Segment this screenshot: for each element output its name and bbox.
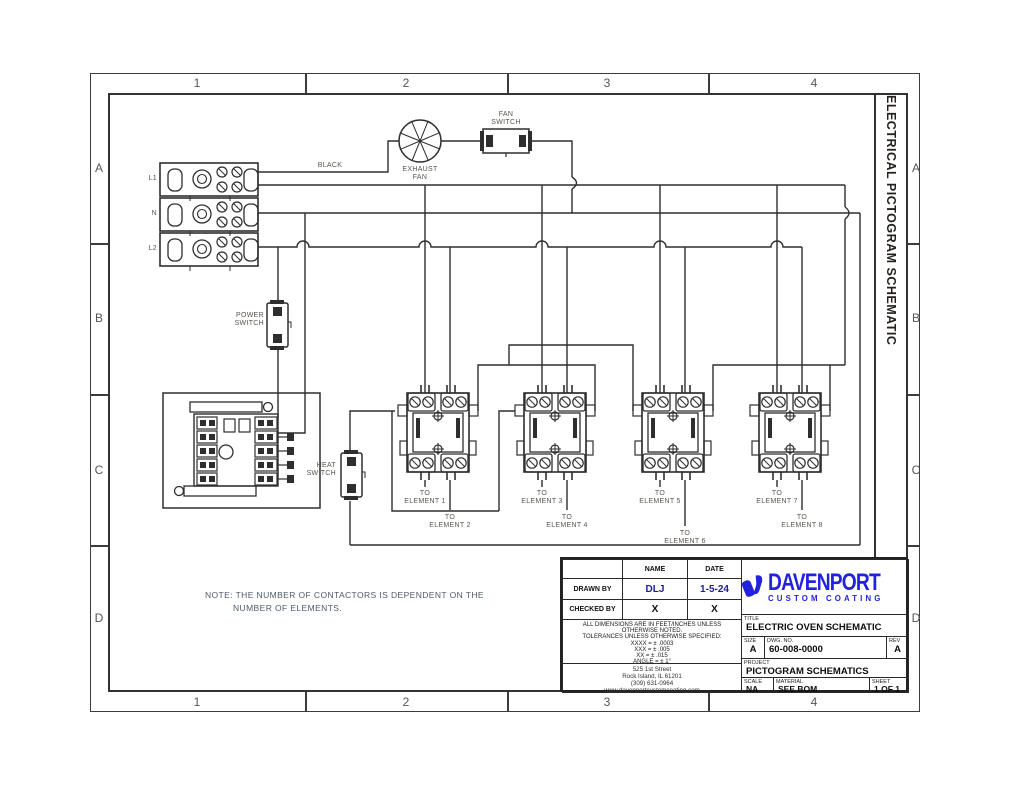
address-line: (309) 631-0964 — [631, 680, 673, 687]
wire — [659, 459, 666, 466]
note-line-2: NUMBER OF ELEMENTS. — [233, 603, 342, 613]
symbol-outline — [244, 204, 258, 226]
terminal-lug — [200, 476, 206, 482]
terminal-lug — [519, 135, 526, 147]
terminal-lug — [344, 496, 358, 500]
wire — [528, 398, 535, 405]
tb-title-value: ELECTRIC OVEN SCHEMATIC — [742, 622, 908, 633]
symbol-outline — [239, 419, 250, 432]
symbol-outline — [793, 454, 820, 472]
tol-line: XXX = ± .005 — [634, 647, 669, 653]
terminal-lug — [528, 131, 532, 151]
terminal-lug — [200, 420, 206, 426]
symbol-outline — [558, 393, 585, 411]
terminal-lug — [267, 448, 273, 454]
tb-material-value: SEE BOM — [774, 685, 869, 693]
address-line: www.davenportcustomcoating.com — [604, 687, 700, 693]
terminal-lug — [200, 462, 206, 468]
tb-material-cell: MATERIAL SEE BOM — [773, 677, 870, 693]
symbol-outline — [635, 441, 642, 455]
company-logo: DAVENPORT CUSTOM COATING — [741, 559, 909, 615]
wire — [258, 241, 802, 247]
wire — [234, 169, 241, 176]
tb-drawnby-label: DRAWN BY — [562, 578, 623, 600]
exhaust-fan-symbol — [399, 120, 441, 162]
terminal-lug — [480, 131, 484, 151]
tb-dwgno-value: 60-008-0000 — [765, 644, 886, 655]
tol-line: OTHERWISE NOTED. — [622, 628, 683, 634]
tb-scale-value: NA — [742, 685, 773, 693]
heat-switch-symbol — [341, 450, 365, 500]
wire — [574, 459, 581, 466]
wire-color-label: BLACK — [305, 162, 355, 170]
wire — [234, 219, 241, 226]
tb-title-label: TITLE — [742, 615, 908, 622]
wire — [713, 365, 845, 411]
terminal-lug — [486, 135, 493, 147]
wire — [219, 169, 226, 176]
contactor-1 — [398, 385, 478, 480]
terminal-lug — [209, 462, 215, 468]
symbol-outline — [525, 393, 552, 411]
element-label-2: TO ELEMENT 2 — [425, 514, 475, 530]
terminal-block-n — [160, 198, 258, 236]
symbol-outline — [441, 454, 468, 472]
wire — [528, 459, 535, 466]
wire — [679, 459, 686, 466]
tb-checkedby-label: CHECKED BY — [562, 599, 623, 620]
terminal-lug — [270, 346, 284, 350]
wire — [679, 398, 686, 405]
tb-dwgno-cell: DWG. NO. 60-008-0000 — [764, 636, 887, 659]
tb-title-cell: TITLE ELECTRIC OVEN SCHEMATIC — [741, 614, 909, 637]
symbol-outline — [676, 454, 703, 472]
symbol-outline — [515, 405, 524, 416]
symbol-outline — [163, 393, 320, 508]
tb-scale-cell: SCALE NA — [741, 677, 774, 693]
terminal-lug — [456, 418, 460, 438]
tb-checkedby-name: X — [622, 599, 688, 620]
symbol-outline — [704, 405, 713, 416]
wire — [499, 411, 515, 511]
address-line: Rock Island, IL 61201 — [622, 673, 682, 680]
symbol-outline — [441, 393, 468, 411]
tb-tolerance-notes: ALL DIMENSIONS ARE IN FEET/INCHES UNLESS… — [562, 619, 742, 664]
terminal-lug — [533, 418, 537, 438]
wire — [444, 459, 451, 466]
terminal-lug — [573, 418, 577, 438]
symbol-outline — [408, 393, 435, 411]
wire — [457, 459, 464, 466]
terminal-lug — [287, 433, 294, 441]
tol-line: ALL DIMENSIONS ARE IN FEET/INCHES UNLESS — [583, 622, 721, 628]
tb-drawnby-date: 1-5-24 — [687, 578, 742, 600]
tol-line: XXXX = ± .0003 — [631, 641, 674, 647]
wire — [561, 459, 568, 466]
symbol-outline — [244, 239, 258, 261]
symbol-outline — [469, 441, 476, 455]
symbol-outline — [750, 405, 759, 416]
wire — [776, 398, 783, 405]
symbol-outline — [586, 441, 593, 455]
symbol-outline — [704, 441, 711, 455]
terminal-lug — [287, 447, 294, 455]
symbol-outline — [244, 169, 258, 191]
element-label-3: TO ELEMENT 3 — [517, 490, 567, 506]
symbol-outline — [184, 486, 256, 496]
terminal-lug — [209, 420, 215, 426]
wire — [219, 254, 226, 261]
contactor-3 — [633, 385, 713, 480]
tb-size-cell: SIZE A — [741, 636, 765, 659]
symbol-outline — [676, 393, 703, 411]
terminal-label-n: N — [117, 210, 157, 218]
terminal-lug — [270, 300, 284, 304]
symbol-outline — [821, 405, 830, 416]
wire — [457, 398, 464, 405]
sheet-side-title: ELECTRICAL PICTOGRAM SCHEMATIC — [873, 95, 908, 565]
wire — [763, 398, 770, 405]
wire — [541, 459, 548, 466]
terminal-lug — [344, 450, 358, 454]
wire — [809, 459, 816, 466]
terminal-lug — [273, 334, 282, 343]
wire — [219, 204, 226, 211]
wire — [646, 398, 653, 405]
wire — [659, 398, 666, 405]
terminal-lug — [273, 307, 282, 316]
terminal-lug — [258, 448, 264, 454]
wire — [350, 411, 395, 453]
terminal-lug — [267, 476, 273, 482]
tb-blank-cell — [562, 559, 623, 579]
wire — [424, 459, 431, 466]
symbol-outline — [168, 169, 182, 191]
tb-project-cell: PROJECT PICTOGRAM SCHEMATICS — [741, 658, 909, 678]
symbol-outline — [793, 393, 820, 411]
tol-line: TOLERANCES UNLESS OTHERWISE SPECIFIED: — [582, 634, 721, 640]
logo-mark-icon — [742, 563, 767, 611]
terminal-lug — [209, 448, 215, 454]
tb-drawnby-name: DLJ — [622, 578, 688, 600]
tb-size-label: SIZE — [742, 637, 764, 644]
terminal-lug — [651, 418, 655, 438]
symbol-outline — [760, 454, 787, 472]
wire — [692, 459, 699, 466]
wire — [219, 239, 226, 246]
wire — [219, 184, 226, 191]
terminal-lug — [347, 484, 356, 493]
tb-rev-cell: REV A — [886, 636, 909, 659]
terminal-lug — [267, 434, 273, 440]
terminal-lug — [258, 462, 264, 468]
wire — [646, 459, 653, 466]
symbol-outline — [400, 441, 407, 455]
wire — [692, 398, 699, 405]
address-line: 525 1st Street — [633, 666, 672, 673]
element-label-1: TO ELEMENT 1 — [400, 490, 450, 506]
tb-date-header: DATE — [687, 559, 742, 579]
wire — [411, 398, 418, 405]
terminal-label-l1: L1 — [117, 175, 157, 183]
tb-sheet-cell: SHEET 1 OF 1 — [869, 677, 909, 693]
terminal-lug — [416, 418, 420, 438]
element-label-4: TO ELEMENT 4 — [542, 514, 592, 530]
terminal-lug — [200, 434, 206, 440]
wire — [541, 398, 548, 405]
terminal-lug — [691, 418, 695, 438]
wire — [234, 204, 241, 211]
symbol-outline — [633, 405, 642, 416]
tb-company-address: 525 1st Street Rock Island, IL 61201 (30… — [562, 663, 742, 693]
wire — [234, 184, 241, 191]
terminal-lug — [258, 434, 264, 440]
wire — [776, 459, 783, 466]
terminal-lug — [267, 462, 273, 468]
symbol-outline — [194, 414, 278, 486]
terminal-lug — [808, 418, 812, 438]
tb-checkedby-date: X — [687, 599, 742, 620]
symbol-outline — [643, 454, 670, 472]
logo-name: DAVENPORT — [768, 572, 880, 594]
terminal-lug — [200, 448, 206, 454]
symbol-outline — [586, 405, 595, 416]
wire — [529, 141, 572, 177]
note-line-1: NOTE: THE NUMBER OF CONTACTORS IS DEPEND… — [205, 590, 484, 600]
tb-rev-value: A — [887, 644, 908, 655]
symbol-outline — [408, 454, 435, 472]
element-label-8: TO ELEMENT 8 — [777, 514, 827, 530]
tb-project-label: PROJECT — [742, 659, 908, 666]
power-switch-label: POWER SWITCH — [214, 312, 264, 328]
symbol-outline — [224, 419, 235, 432]
symbol-outline — [525, 454, 552, 472]
terminal-label-l2: L2 — [117, 245, 157, 253]
wire — [424, 398, 431, 405]
wire — [572, 177, 577, 189]
wire — [509, 345, 633, 411]
terminal-lug — [267, 420, 273, 426]
symbol-outline — [168, 204, 182, 226]
tb-name-header: NAME — [622, 559, 688, 579]
symbol-outline — [643, 393, 670, 411]
terminal-lug — [768, 418, 772, 438]
terminal-lug — [209, 434, 215, 440]
tb-rev-label: REV — [887, 637, 908, 644]
symbol-outline — [558, 454, 585, 472]
logo-tagline: CUSTOM COATING — [768, 594, 905, 603]
fan-switch-symbol — [480, 129, 532, 157]
wire — [411, 459, 418, 466]
wire — [219, 219, 226, 226]
wire — [809, 398, 816, 405]
symbol-outline — [190, 402, 262, 412]
terminal-block-l1 — [160, 163, 258, 201]
contactor-4 — [750, 385, 830, 480]
contactor-2 — [515, 385, 595, 480]
wire — [796, 459, 803, 466]
wire — [234, 254, 241, 261]
title-block: NAME DATE DRAWN BY DLJ 1-5-24 CHECKED BY… — [560, 557, 908, 692]
wire — [796, 398, 803, 405]
terminal-lug — [209, 476, 215, 482]
wire — [574, 398, 581, 405]
terminal-lug — [347, 457, 356, 466]
drawing-sheet: 1 2 3 4 1 2 3 4 A B C D A B C D BLACK FA… — [0, 0, 1024, 791]
tb-sheet-value: 1 OF 1 — [870, 685, 908, 693]
tb-project-value: PICTOGRAM SCHEMATICS — [742, 666, 908, 677]
symbol-outline — [398, 405, 407, 416]
power-switch-symbol — [267, 300, 291, 350]
symbol-outline — [752, 441, 759, 455]
element-label-5: TO ELEMENT 5 — [635, 490, 685, 506]
symbol-outline — [517, 441, 524, 455]
fan-switch-label: FAN SWITCH — [481, 111, 531, 127]
wire — [234, 239, 241, 246]
terminal-block-l2 — [160, 233, 258, 271]
symbol-outline — [760, 393, 787, 411]
exhaust-fan-label: EXHAUST FAN — [395, 166, 445, 182]
tb-size-value: A — [742, 644, 764, 655]
tol-line: XX = ± .015 — [636, 653, 667, 659]
symbol-outline — [168, 239, 182, 261]
wire — [444, 398, 451, 405]
symbol-outline — [821, 441, 828, 455]
element-label-7: TO ELEMENT 7 — [752, 490, 802, 506]
control-board — [163, 393, 320, 508]
element-label-6: TO ELEMENT 6 — [660, 530, 710, 546]
heat-switch-label: HEAT SWITCH — [288, 462, 336, 478]
tb-dwgno-label: DWG. NO. — [765, 637, 886, 644]
symbol-outline — [469, 405, 478, 416]
terminal-lug — [258, 420, 264, 426]
terminal-lug — [258, 476, 264, 482]
wire — [763, 459, 770, 466]
wire — [561, 398, 568, 405]
